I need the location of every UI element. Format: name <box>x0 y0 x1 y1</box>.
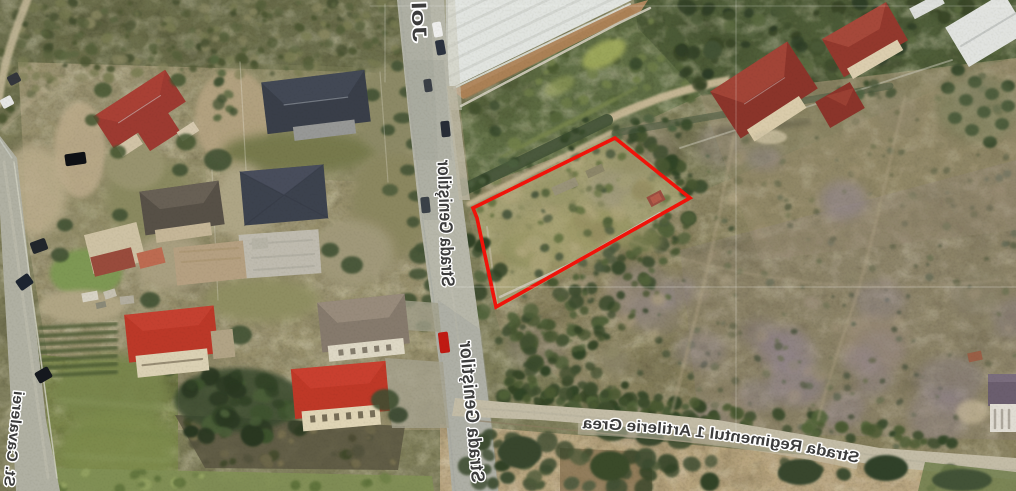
svg-text:Strada Geniştilor: Strada Geniştilor <box>434 159 459 287</box>
svg-text:Jol: Jol <box>407 1 430 42</box>
